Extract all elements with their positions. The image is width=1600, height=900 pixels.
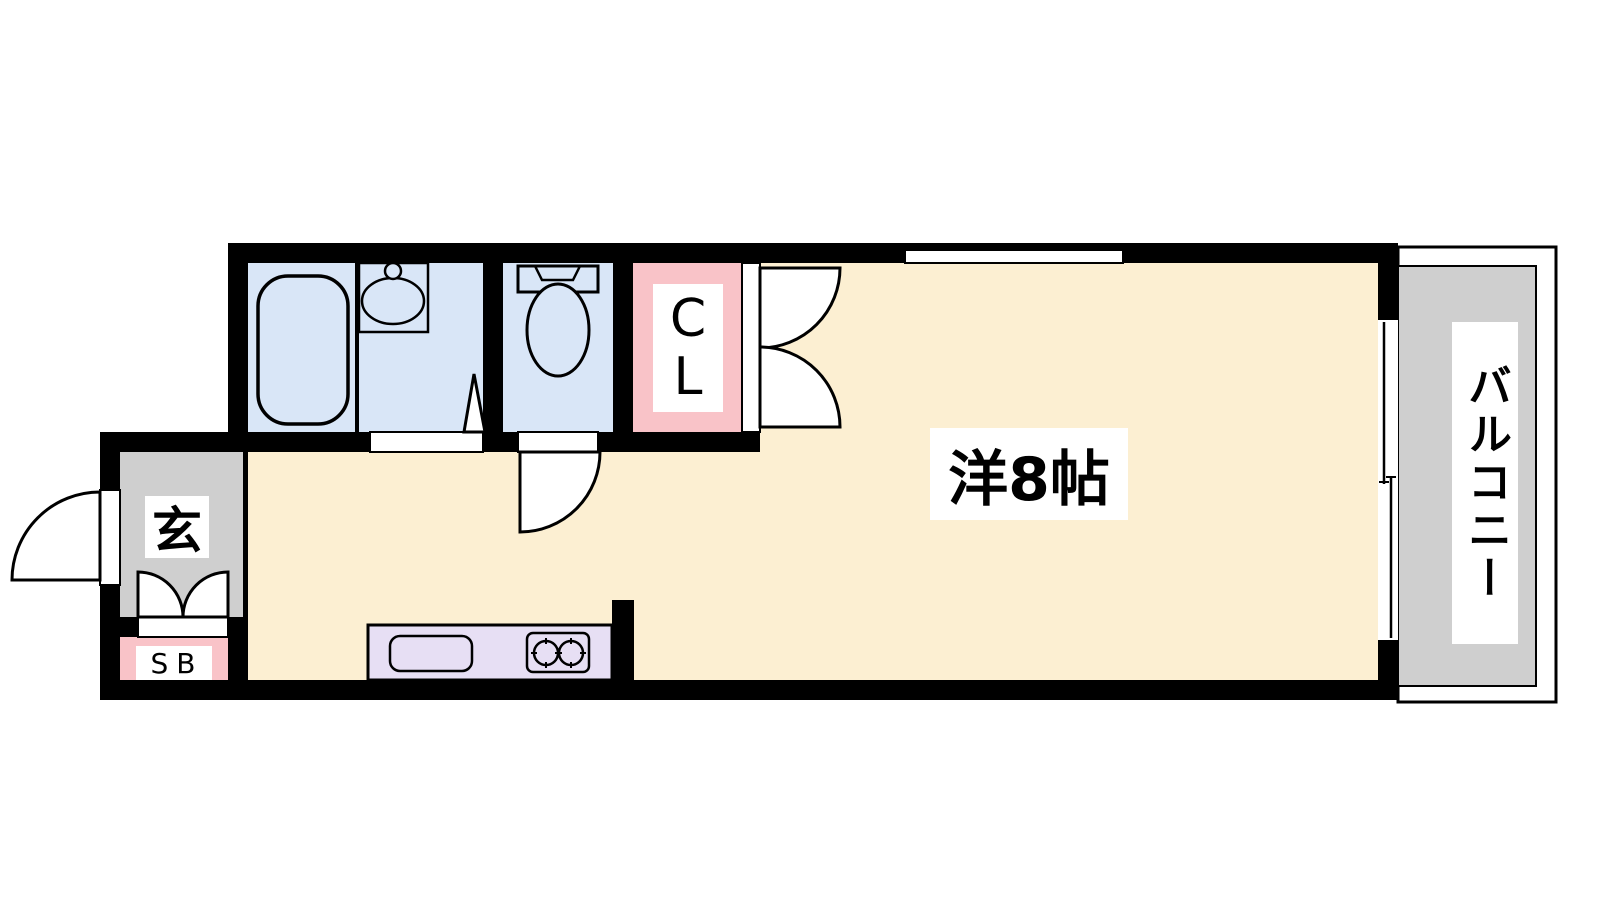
bathtub: [258, 276, 348, 424]
wall-bottom: [100, 680, 1398, 700]
balcony-sliding-window: [1378, 320, 1398, 640]
floor-plan: 玄 SB CL 洋8帖 バルコニー: [0, 0, 1600, 900]
balcony-label: バルコニー: [1452, 322, 1518, 644]
entrance-label: 玄: [145, 496, 209, 558]
entrance-door-swing: [12, 492, 100, 580]
wall-wash-toilet: [483, 263, 503, 432]
wall-bath-bottom: [228, 432, 760, 452]
toilet-door-opening: [518, 432, 598, 452]
wall-top: [228, 243, 1398, 263]
wall-toilet-closet: [613, 263, 633, 432]
wall-shoebox-left-stub: [120, 617, 138, 637]
wall-entrance-top: [100, 432, 248, 452]
western-room-label: 洋8帖: [930, 428, 1128, 520]
entrance-door-opening: [100, 490, 120, 585]
kitchen-counter: [368, 625, 612, 680]
wall-kitchen-stub: [612, 600, 634, 680]
floor-plan-drawing: [0, 0, 1600, 900]
wall-shoebox-right: [228, 617, 248, 680]
closet-label: CL: [653, 284, 723, 412]
shoe-box-label: SB: [136, 646, 212, 680]
top-wall-window: [905, 250, 1123, 263]
shoe-box-opening: [138, 617, 228, 637]
entrance-room-divider: [243, 452, 248, 617]
wall-bath-left: [228, 243, 248, 452]
closet-door-track: [742, 263, 760, 432]
washroom-door-opening: [370, 432, 483, 452]
